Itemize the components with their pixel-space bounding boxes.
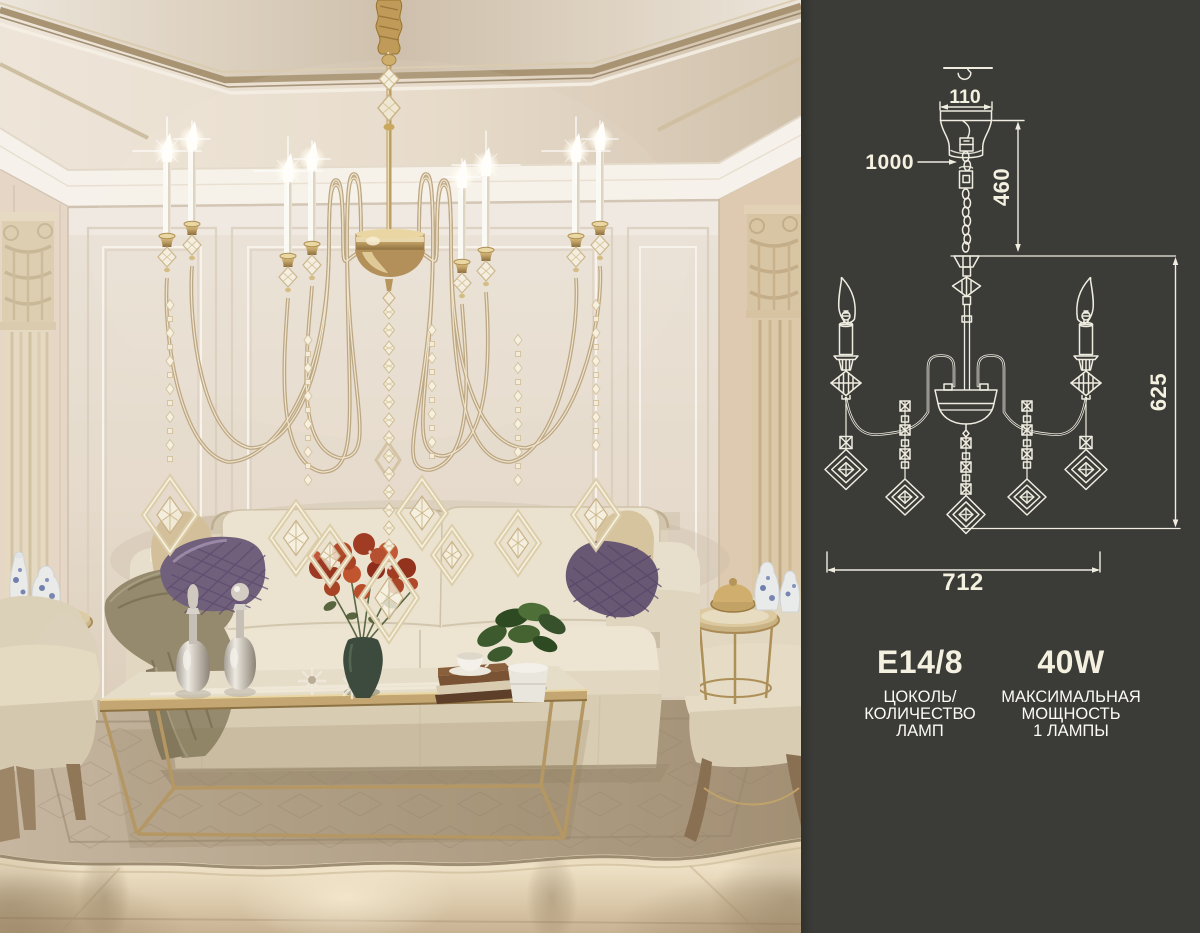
svg-text:МОЩНОСТЬ: МОЩНОСТЬ: [1021, 705, 1120, 723]
svg-text:625: 625: [1146, 373, 1171, 411]
svg-text:1 ЛАМПЫ: 1 ЛАМПЫ: [1033, 722, 1109, 740]
svg-text:460: 460: [989, 168, 1014, 206]
svg-text:712: 712: [942, 569, 984, 596]
svg-text:40W: 40W: [1037, 644, 1105, 680]
svg-text:110: 110: [949, 86, 981, 108]
svg-text:КОЛИЧЕСТВО: КОЛИЧЕСТВО: [864, 705, 976, 723]
svg-text:E14/8: E14/8: [877, 644, 963, 680]
svg-text:ЛАМП: ЛАМП: [896, 722, 943, 740]
svg-text:ЦОКОЛЬ/: ЦОКОЛЬ/: [884, 688, 957, 706]
svg-text:1000: 1000: [865, 151, 914, 174]
svg-text:МАКСИМАЛЬНАЯ: МАКСИМАЛЬНАЯ: [1001, 688, 1141, 706]
